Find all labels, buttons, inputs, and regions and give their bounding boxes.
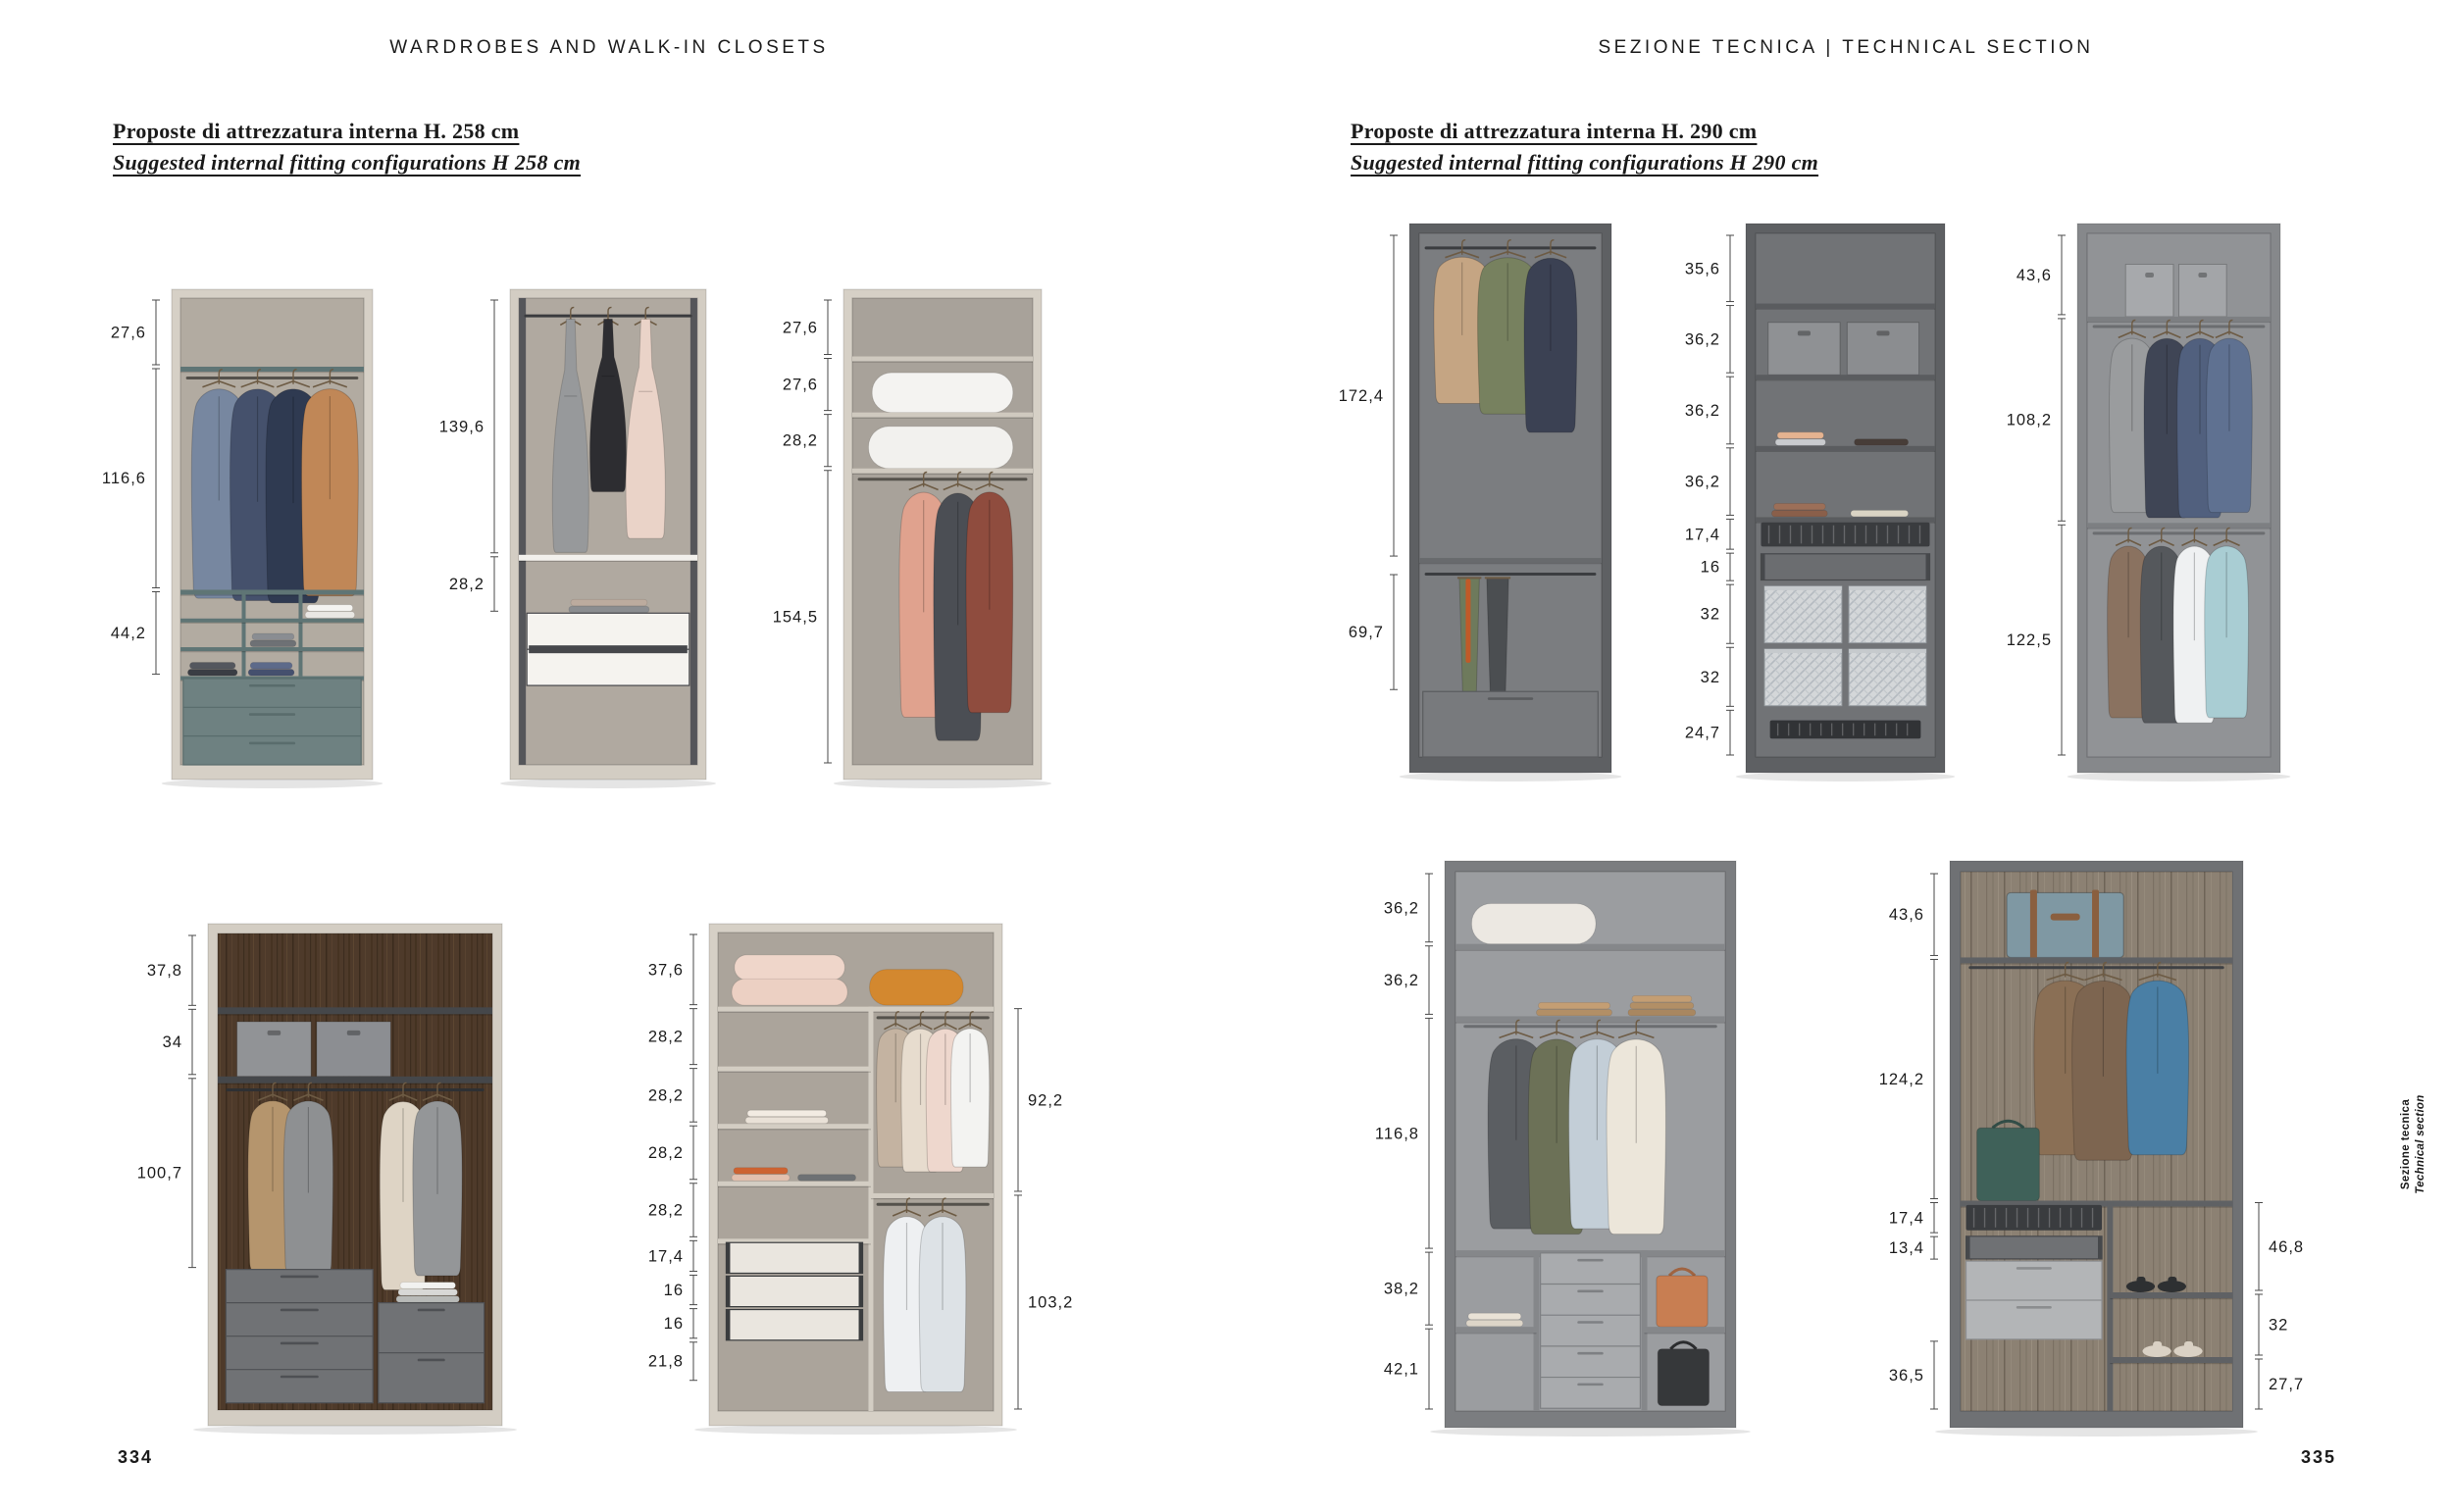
- dimension-label: 36,2: [1685, 474, 1720, 491]
- left-page-number: 334: [118, 1447, 153, 1468]
- dimension-label: 37,6: [648, 961, 684, 979]
- dimension-label: 27,6: [111, 324, 146, 341]
- dimension-label: 36,2: [1384, 899, 1419, 917]
- dimension-label: 16: [664, 1315, 684, 1333]
- dimension-label: 21,8: [648, 1353, 684, 1371]
- dimension-label: 36,2: [1384, 972, 1419, 989]
- side-label-english: Technical section: [2414, 1065, 2428, 1224]
- dimension-label: 28,2: [648, 1144, 684, 1162]
- dimension-label: 24,7: [1685, 725, 1720, 742]
- dimension-label: 27,6: [783, 377, 818, 394]
- side-tab-label: Sezione tecnica Technical section: [2399, 1065, 2428, 1224]
- catalog-spread: WARDROBES AND WALK-IN CLOSETS SEZIONE TE…: [0, 0, 2451, 1512]
- dimension-label: 32: [1701, 606, 1720, 624]
- wardrobe-9-h290-pillow-hanging-drawers-shelves: 36,236,2116,838,242,1: [1347, 855, 1819, 1437]
- dimension-label: 32: [1701, 669, 1720, 686]
- dimension-label: 27,6: [783, 319, 818, 336]
- dimension-label: 154,5: [773, 608, 818, 626]
- wardrobe-2-h258-dresses-drawer: 139,628,2: [412, 283, 790, 789]
- dimension-label: 17,4: [1889, 1209, 1924, 1227]
- dimension-label: 28,2: [648, 1202, 684, 1220]
- dimension-label: 28,2: [783, 432, 818, 450]
- dimension-label: 43,6: [2017, 267, 2052, 284]
- dimension-label: 37,8: [147, 962, 182, 980]
- dimension-label: 124,2: [1879, 1071, 1924, 1088]
- dimension-label: 43,6: [1889, 906, 1924, 924]
- dimension-label: 32: [2269, 1317, 2288, 1335]
- dimension-label: 36,2: [1685, 330, 1720, 348]
- dimension-label: 35,6: [1685, 260, 1720, 277]
- wardrobe-illustrations: 27,6116,644,2139,628,227,627,628,2154,53…: [0, 0, 2451, 1512]
- dimension-label: 34: [163, 1033, 182, 1051]
- wardrobe-5-h258-shelves-double-hanging: 37,628,228,228,228,217,4161621,892,2103,…: [611, 918, 1086, 1436]
- dimension-label: 16: [1701, 559, 1720, 577]
- dimension-label: 36,5: [1889, 1367, 1924, 1385]
- wardrobe-10-h290-trunk-coats-shoe-shelves: 43,6124,217,413,436,546,83227,7: [1852, 855, 2326, 1437]
- dimension-label: 46,8: [2269, 1238, 2304, 1256]
- side-label-italian: Sezione tecnica: [2399, 1065, 2414, 1224]
- dimension-label: 17,4: [1685, 526, 1720, 543]
- right-page-number: 335: [2301, 1447, 2336, 1468]
- wardrobe-1-h258-jackets-cubbies-drawers: 27,6116,644,2: [74, 283, 456, 789]
- dimension-label: 116,6: [102, 470, 146, 487]
- dimension-label: 116,8: [1375, 1125, 1419, 1142]
- dimension-label: 122,5: [2007, 631, 2052, 649]
- dimension-label: 100,7: [137, 1165, 182, 1183]
- dimension-label: 28,2: [648, 1086, 684, 1104]
- wardrobe-3-h258-pillows-coats: 27,627,628,2154,5: [745, 283, 1125, 789]
- dimension-label: 28,2: [449, 576, 485, 593]
- dimension-label: 17,4: [648, 1247, 684, 1265]
- dimension-label: 69,7: [1349, 624, 1384, 641]
- dimension-label: 103,2: [1028, 1293, 1073, 1311]
- wardrobe-8-h290-boxes-two-hanging: 43,6108,2122,5: [1979, 218, 2364, 782]
- dimension-label: 36,2: [1685, 402, 1720, 420]
- wardrobe-6-h290-coats-trousers-drawer: 172,469,7: [1311, 218, 1695, 782]
- dimension-label: 139,6: [439, 418, 485, 435]
- dimension-label: 92,2: [1028, 1091, 1063, 1109]
- dimension-label: 38,2: [1384, 1281, 1419, 1298]
- dimension-label: 172,4: [1339, 387, 1384, 405]
- wardrobe-4-h258-wood-boxes-jackets-drawers: 37,834100,7: [110, 918, 586, 1436]
- dimension-label: 42,1: [1384, 1361, 1419, 1379]
- wardrobe-7-h290-shelves-baskets: 35,636,236,236,217,416323224,7: [1648, 218, 2028, 782]
- dimension-label: 13,4: [1889, 1239, 1924, 1257]
- dimension-label: 28,2: [648, 1029, 684, 1046]
- dimension-label: 108,2: [2007, 412, 2052, 429]
- dimension-label: 16: [664, 1282, 684, 1299]
- dimension-label: 44,2: [111, 625, 146, 642]
- dimension-label: 27,7: [2269, 1376, 2304, 1393]
